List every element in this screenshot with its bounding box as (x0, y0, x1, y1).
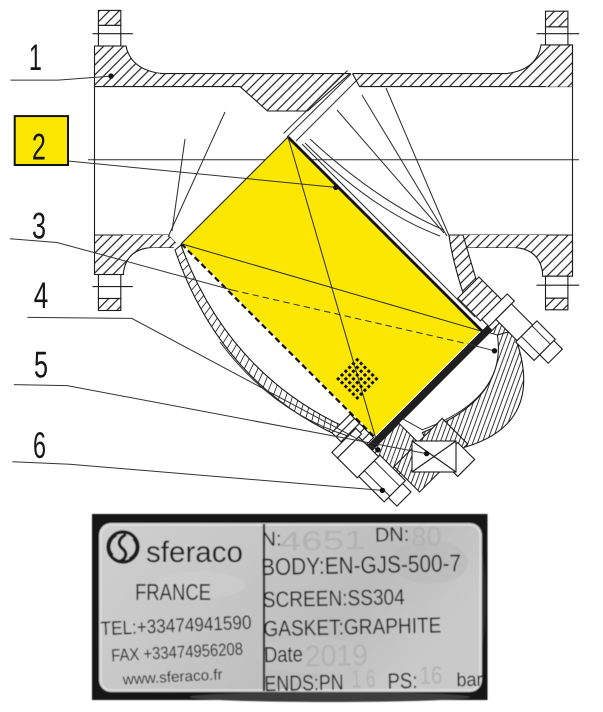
svg-text:SCREEN:SS304: SCREEN:SS304 (262, 584, 404, 612)
svg-text:sferaco: sferaco (146, 536, 243, 569)
svg-text:DN:: DN: (375, 524, 410, 547)
svg-text:ENDS:PN: ENDS:PN (264, 670, 344, 697)
svg-text:6: 6 (33, 425, 46, 466)
svg-text:4: 4 (34, 275, 49, 316)
svg-text:FRANCE: FRANCE (135, 579, 211, 605)
svg-text:16: 16 (419, 662, 443, 690)
svg-text:bar: bar (456, 670, 483, 692)
svg-text:GASKET:GRAPHITE: GASKET:GRAPHITE (263, 613, 441, 642)
svg-text:2: 2 (32, 126, 46, 167)
svg-text:1: 1 (29, 37, 42, 78)
svg-text:Date: Date (264, 641, 304, 667)
svg-text:PS:: PS: (387, 668, 418, 694)
svg-text:3: 3 (32, 205, 46, 246)
svg-text:5: 5 (34, 344, 48, 385)
svg-text:80: 80 (411, 521, 442, 552)
svg-text:BODY:EN-GJS-500-7: BODY:EN-GJS-500-7 (261, 550, 462, 581)
svg-text:1 6: 1 6 (351, 665, 376, 693)
